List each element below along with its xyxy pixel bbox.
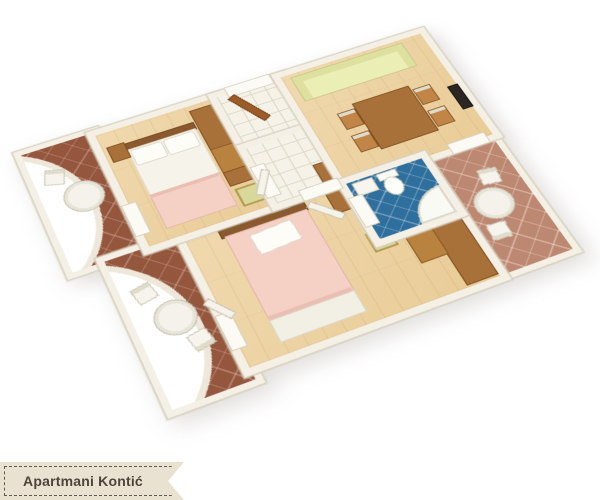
apartment-plan [20, 27, 600, 445]
apartment-title: Apartmani Kontić [0, 462, 184, 500]
floor-plan-image: Apartmani Kontić [0, 0, 600, 500]
balcony-chair [44, 169, 65, 186]
title-ribbon: Apartmani Kontić [0, 462, 184, 500]
